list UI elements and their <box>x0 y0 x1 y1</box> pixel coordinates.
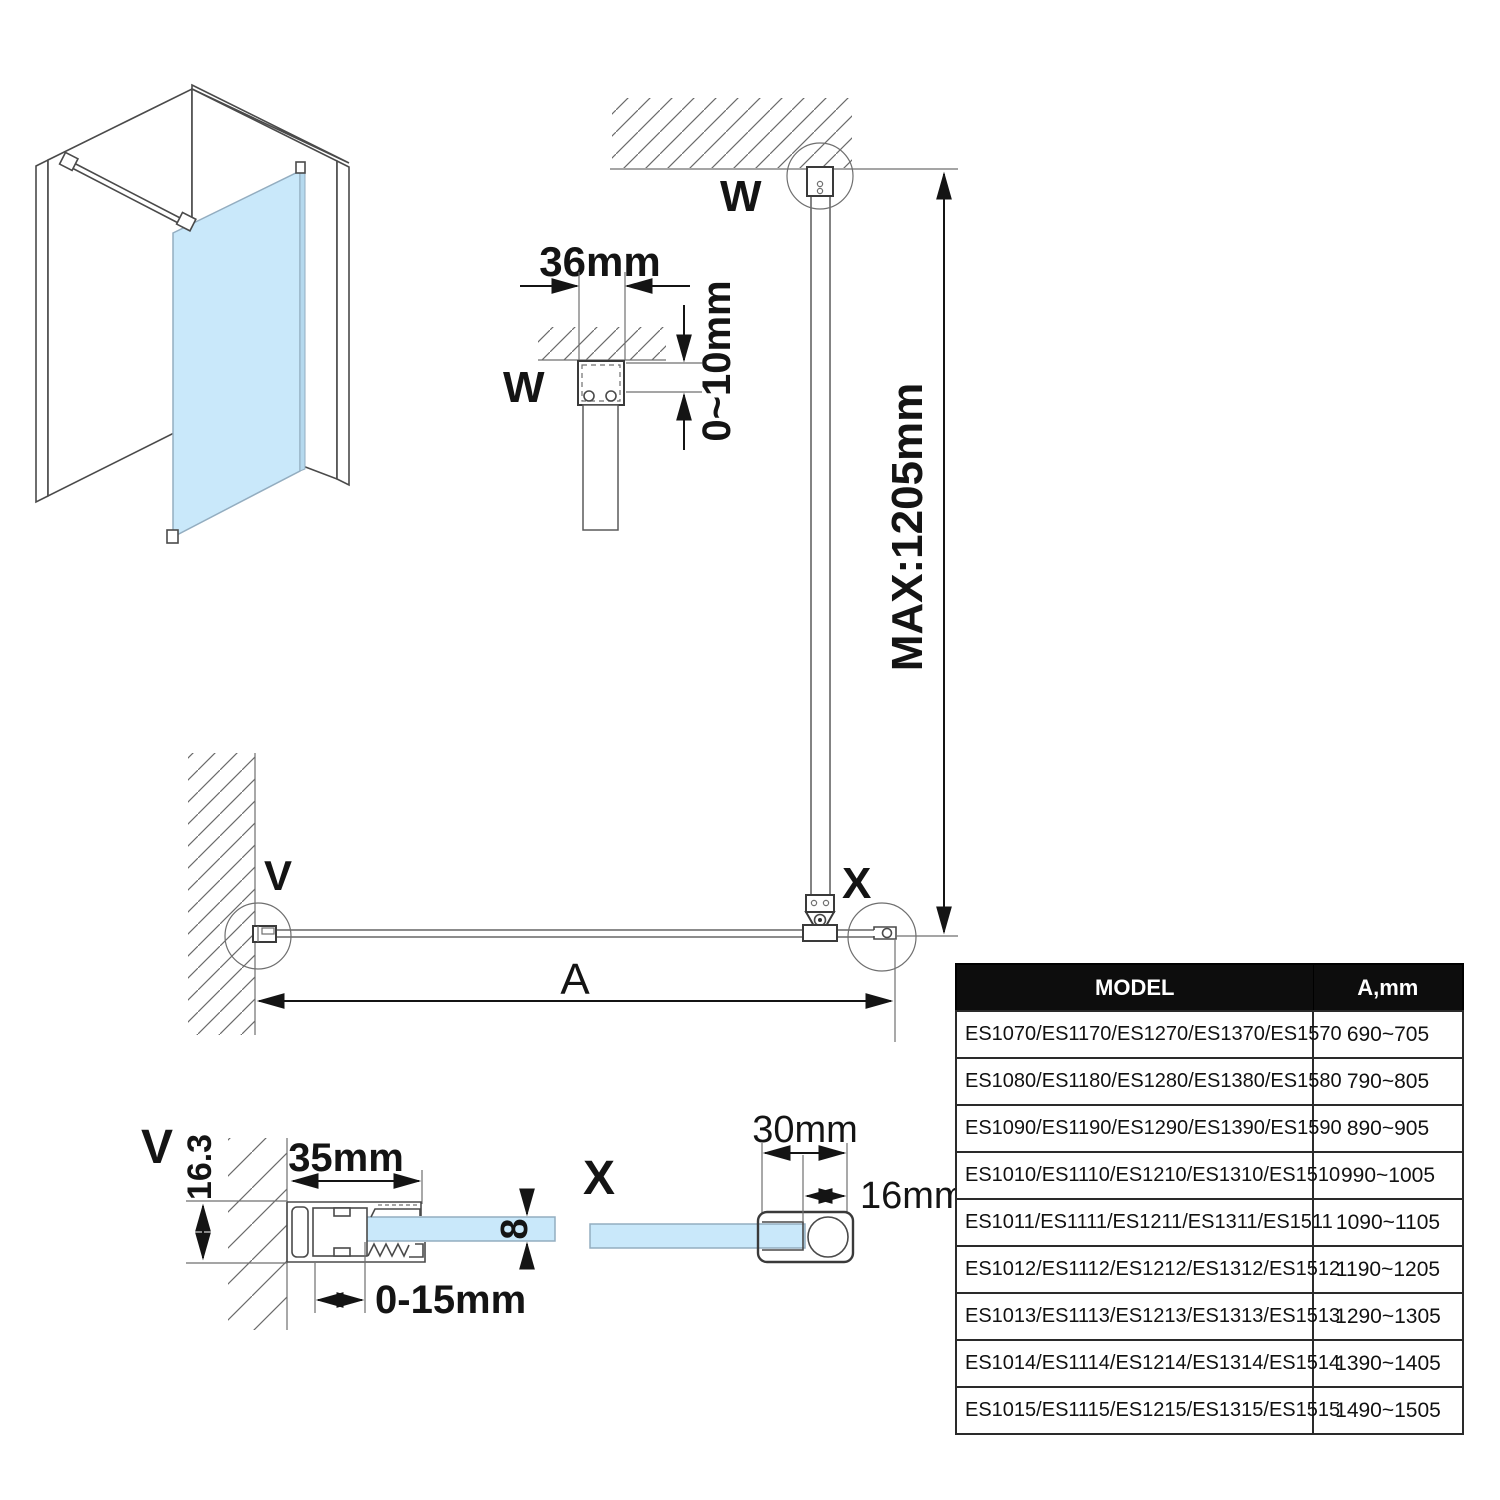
detail-label-w-small: W <box>503 363 545 412</box>
model-cell: ES1090/ES1190/ES1290/ES1390/ES1590 <box>956 1105 1313 1152</box>
detail-label-v-section: V <box>141 1121 173 1174</box>
detail-label-x-main: X <box>842 859 871 908</box>
w-detail: 36mm W 0~10mm <box>503 238 739 530</box>
model-cell: ES1013/ES1113/ES1213/ES1313/ES1513 <box>956 1293 1313 1340</box>
dim-8: 8 <box>494 1218 536 1239</box>
model-cell: ES1070/ES1170/ES1270/ES1370/ES1570 <box>956 1011 1313 1058</box>
model-cell: ES1015/ES1115/ES1215/ES1315/ES1515 <box>956 1387 1313 1434</box>
plan-view: V X A <box>188 753 958 1042</box>
w-detail-bar <box>583 405 618 530</box>
v-section: V 16.3 35mm 0-15mm 8 <box>141 1121 555 1330</box>
detail-label-w-top: W <box>720 172 762 221</box>
table-row: ES1011/ES1111/ES1211/ES1311/ES15111090~1… <box>956 1199 1463 1246</box>
ceiling-hatch <box>612 98 852 168</box>
table-row: ES1010/ES1110/ES1210/ES1310/ES1510990~10… <box>956 1152 1463 1199</box>
dim-35mm: 35mm <box>288 1136 404 1180</box>
table-header-row: MODEL A,mm <box>956 964 1463 1011</box>
model-table: MODEL A,mm ES1070/ES1170/ES1270/ES1370/E… <box>955 963 1464 1435</box>
dim-a: A <box>560 955 590 1004</box>
table-row: ES1012/ES1112/ES1212/ES1312/ES15121190~1… <box>956 1246 1463 1293</box>
glass-plan <box>255 930 875 937</box>
a-cell: 1490~1505 <box>1313 1387 1463 1434</box>
bar-glass-clamp-plan <box>803 925 837 941</box>
dim-16mm: 16mm <box>860 1175 966 1217</box>
table-row: ES1080/ES1180/ES1280/ES1380/ES1580790~80… <box>956 1058 1463 1105</box>
table-row: ES1014/ES1114/ES1214/ES1314/ES15141390~1… <box>956 1340 1463 1387</box>
max-height-dimension: MAX:1205mm <box>883 174 944 932</box>
header-a-mm: A,mm <box>1313 964 1463 1011</box>
model-cell: ES1010/ES1110/ES1210/ES1310/ES1510 <box>956 1152 1313 1199</box>
glass-top-bracket-iso <box>296 162 305 173</box>
isometric-view <box>36 85 349 543</box>
glass-foot-iso <box>167 530 178 543</box>
dim-16-3: 16.3 <box>181 1134 219 1200</box>
table-row: ES1015/ES1115/ES1215/ES1315/ES15151490~1… <box>956 1387 1463 1434</box>
glass-x-section <box>590 1224 805 1248</box>
a-cell: 1090~1105 <box>1313 1199 1463 1246</box>
wall-hatch <box>188 753 255 1035</box>
table-row: ES1090/ES1190/ES1290/ES1390/ES1590890~90… <box>956 1105 1463 1152</box>
w-detail-hatch <box>538 327 666 360</box>
model-cell: ES1011/ES1111/ES1211/ES1311/ES1511 <box>956 1199 1313 1246</box>
model-cell: ES1080/ES1180/ES1280/ES1380/ES1580 <box>956 1058 1313 1105</box>
dim-0-10mm: 0~10mm <box>695 280 739 441</box>
x-section: X 30mm 16mm <box>583 1109 966 1262</box>
dim-max-1205mm: MAX:1205mm <box>883 383 932 672</box>
model-cell: ES1014/ES1114/ES1214/ES1314/ES1514 <box>956 1340 1313 1387</box>
dim-36mm: 36mm <box>539 238 660 285</box>
a-cell: 1390~1405 <box>1313 1340 1463 1387</box>
bar-foot-sleeve <box>806 895 834 912</box>
a-cell: 1290~1305 <box>1313 1293 1463 1340</box>
table-row: ES1070/ES1170/ES1270/ES1370/ES1570690~70… <box>956 1011 1463 1058</box>
detail-label-v-main: V <box>264 852 292 899</box>
model-cell: ES1012/ES1112/ES1212/ES1312/ES1512 <box>956 1246 1313 1293</box>
header-model: MODEL <box>956 964 1313 1011</box>
detail-label-x-section: X <box>583 1152 615 1205</box>
dim-0-15mm: 0-15mm <box>375 1278 526 1322</box>
v-wall-hatch <box>228 1138 287 1330</box>
table-row: ES1013/ES1113/ES1213/ES1313/ES15131290~1… <box>956 1293 1463 1340</box>
vertical-bar <box>811 196 830 896</box>
a-cell: 1190~1205 <box>1313 1246 1463 1293</box>
dim-30mm: 30mm <box>752 1109 858 1151</box>
